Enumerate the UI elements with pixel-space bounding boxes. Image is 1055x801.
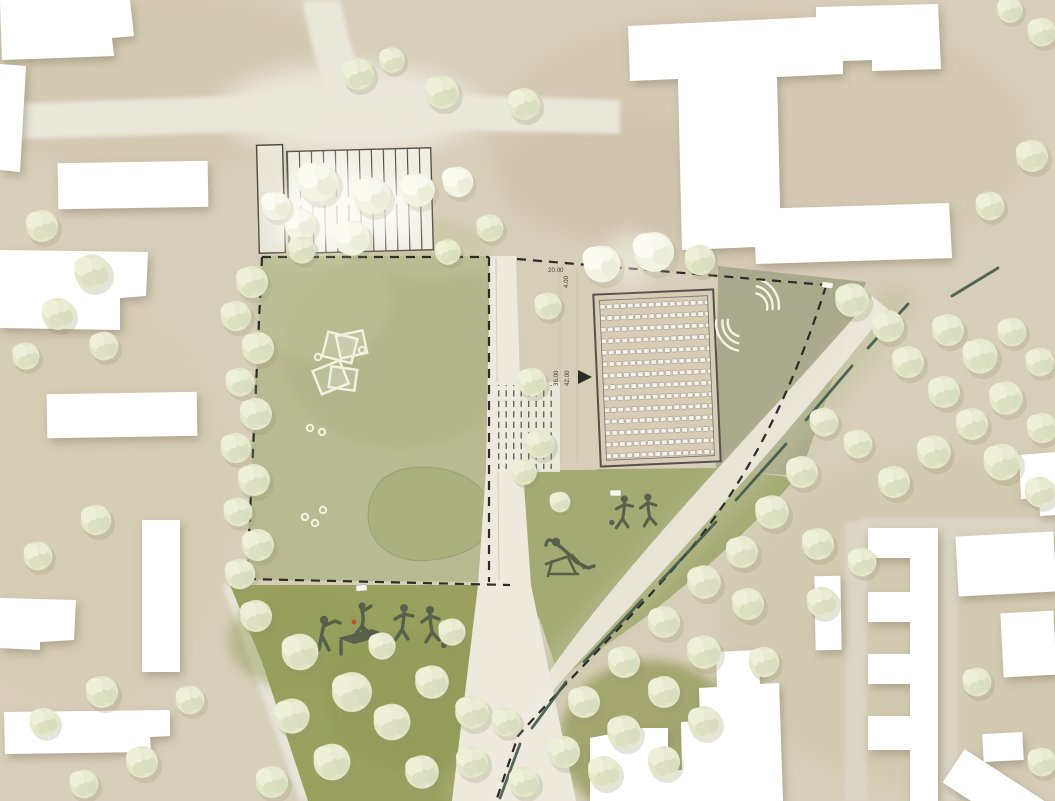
dimension-label: 4.00 <box>563 275 570 288</box>
building-footprint <box>142 520 180 672</box>
ball-icon <box>352 620 357 625</box>
play-squares <box>329 366 358 390</box>
building-footprint <box>868 716 912 750</box>
play-squares <box>336 330 367 358</box>
building-footprint <box>868 654 912 684</box>
building-footprint <box>58 161 209 210</box>
building-footprint <box>868 592 912 622</box>
building-footprint <box>1000 611 1055 678</box>
dimension-label: 20.00 <box>548 267 564 274</box>
building-footprint <box>47 392 198 439</box>
building-footprint <box>955 531 1055 596</box>
small-label-chip <box>356 585 367 592</box>
site-plan-canvas: 20.00 4.00 36.00 42.00 <box>0 0 1055 801</box>
small-label-chip <box>610 490 621 496</box>
building-footprint <box>753 203 952 264</box>
solar-panel-roof <box>593 289 720 466</box>
solar-panel-grid <box>600 296 715 461</box>
road-se-vertical-2 <box>938 535 958 801</box>
building-footprint <box>982 732 1023 762</box>
site-plan-screenshot: 20.00 4.00 36.00 42.00 <box>0 0 1055 801</box>
ball-icon <box>609 520 614 525</box>
dimension-label: 36.00 <box>553 370 560 386</box>
dimension-label: 42.00 <box>564 370 571 386</box>
building-footprint <box>910 528 938 801</box>
small-label-chip <box>822 281 834 288</box>
building-footprint <box>868 528 912 558</box>
